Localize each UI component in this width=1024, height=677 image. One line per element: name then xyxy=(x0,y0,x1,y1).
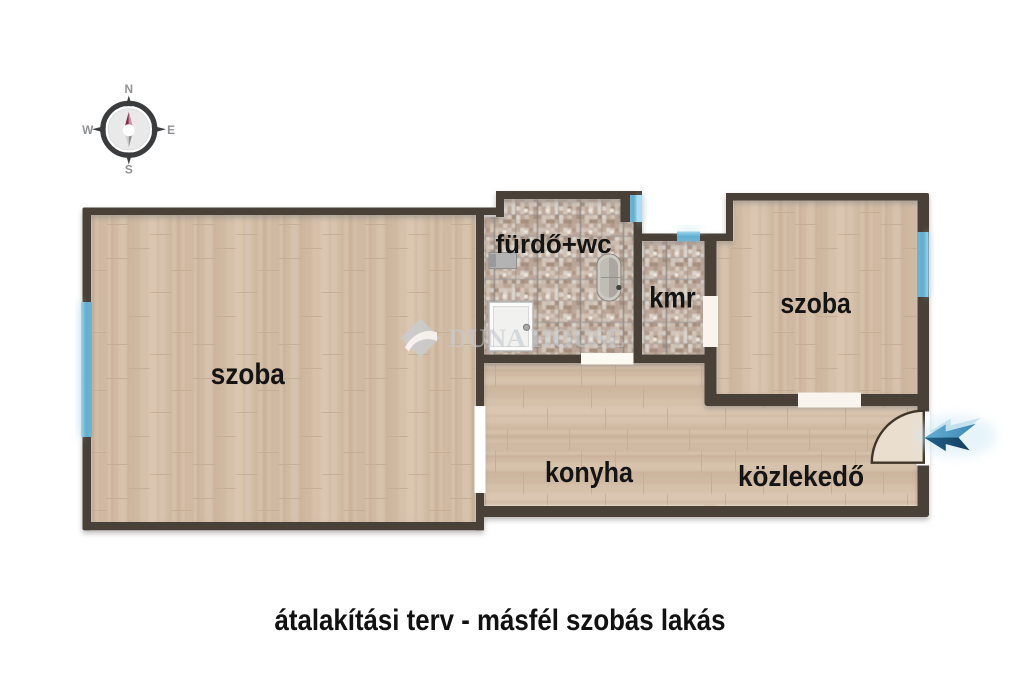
svg-text:N: N xyxy=(125,82,134,96)
svg-text:fürdő+wc: fürdő+wc xyxy=(496,231,612,259)
svg-text:szoba: szoba xyxy=(780,288,851,320)
svg-text:S: S xyxy=(125,162,133,176)
svg-text:szoba: szoba xyxy=(211,358,286,391)
svg-text:DUNA HOUSE: DUNA HOUSE xyxy=(448,324,625,353)
svg-text:E: E xyxy=(167,123,175,137)
svg-text:W: W xyxy=(82,123,94,137)
svg-text:átalakítási terv - másfél szob: átalakítási terv - másfél szobás lakás xyxy=(275,604,726,637)
svg-text:konyha: konyha xyxy=(545,457,634,489)
svg-text:kmr: kmr xyxy=(649,282,696,315)
svg-text:közlekedő: közlekedő xyxy=(738,461,864,493)
